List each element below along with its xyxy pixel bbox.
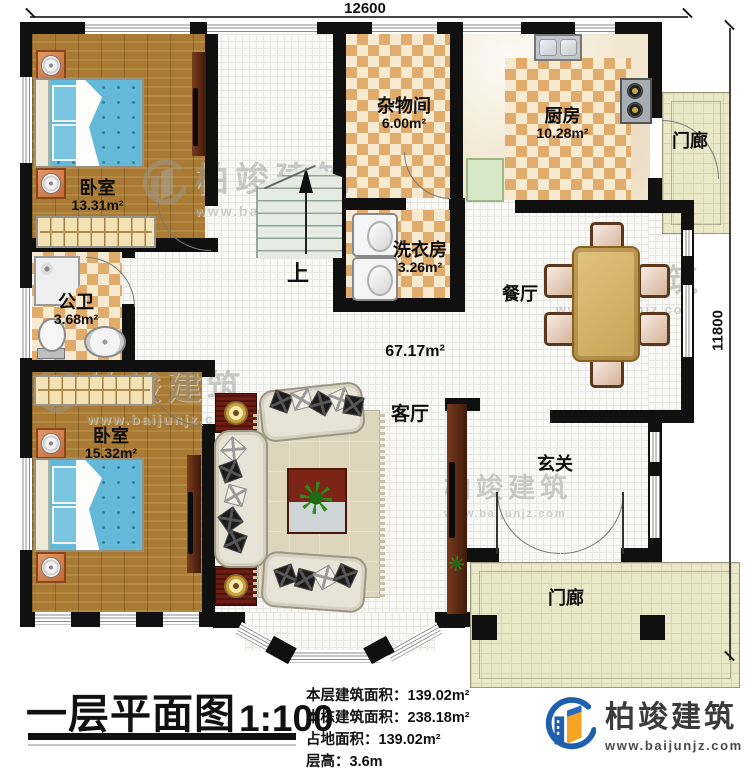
corner-table-icon (215, 393, 257, 433)
window (650, 476, 660, 538)
bathroom-sink-icon (84, 326, 126, 358)
dining-label: 餐厅 (480, 284, 560, 304)
bathroom-name: 公卫 (26, 292, 126, 312)
entry-door-left-leaf (496, 492, 498, 554)
stairs-direction-line (305, 192, 307, 254)
wall-hall-storage-divider (333, 34, 346, 312)
storage-name: 杂物间 (350, 96, 458, 116)
porch-bottom-floor (470, 562, 740, 688)
info-label: 层高： (306, 754, 350, 770)
storage-label: 杂物间 6.00m² (350, 96, 458, 132)
plan-title-text: 一层平面图 (26, 680, 236, 740)
wardrobe-icon (36, 216, 156, 248)
wardrobe-icon (34, 375, 154, 406)
title-underline-thin (28, 744, 296, 746)
nightstand-icon (36, 50, 66, 81)
brand-logo-icon (540, 697, 596, 759)
kitchen-area: 10.28m² (505, 126, 620, 142)
living-area: 67.17m² (355, 343, 475, 361)
dining-chair-icon (638, 264, 670, 298)
bedroom1-name: 卧室 (40, 178, 155, 198)
wall-foyer-bottom-right (621, 548, 662, 562)
window (163, 612, 199, 627)
foyer-name: 玄关 (515, 454, 595, 474)
porch-top-label: 门廊 (658, 131, 722, 151)
plan-title: 一层平面图 1:100 (26, 680, 334, 740)
wall-foyer-bottom-left (465, 548, 499, 562)
kitchen-cabinet-icon (466, 158, 504, 202)
porch-pillar (640, 615, 665, 640)
bed-headboard (36, 80, 50, 166)
window (575, 22, 615, 34)
porch-bottom-name: 门廊 (526, 588, 606, 608)
entry-door-right-leaf (622, 492, 624, 554)
kitchen-name: 厨房 (505, 106, 620, 126)
bathroom-area: 3.68m² (26, 312, 126, 328)
stove-icon (620, 78, 652, 124)
window (372, 22, 437, 34)
building-info: 本层建筑面积：139.02m² 本栋建筑面积：238.18m² 占地面积：139… (306, 685, 470, 773)
brand-name: 柏竣建筑 (605, 703, 743, 733)
bed-pillow (52, 506, 78, 544)
dining-name: 餐厅 (480, 284, 560, 304)
bed-sheet (76, 460, 102, 550)
floor-plan-page: 柏竣建筑 www.baijunjz.com 柏竣建筑 www.baijunjz.… (0, 0, 750, 780)
bed-pillow (52, 85, 78, 122)
tv-icon (193, 88, 198, 146)
wall-kitchen-bottom (515, 200, 694, 213)
wall-bedroom2-right-a (202, 372, 215, 377)
window (100, 612, 136, 627)
bed-headboard (36, 460, 50, 550)
bed-icon (34, 78, 144, 168)
window (463, 22, 521, 34)
dimension-line-right (729, 28, 731, 660)
sofa-pillow (342, 394, 364, 416)
bay-post (435, 612, 465, 628)
window (683, 285, 692, 357)
brand-website: www.baijunjz.com (605, 738, 743, 753)
window (20, 458, 32, 550)
dimension-top-value: 12600 (325, 0, 405, 17)
dining-chair-icon (638, 312, 670, 346)
bedroom1-label: 卧室 13.31m² (40, 178, 155, 214)
stairs-up-label: 上 (278, 256, 318, 288)
info-line: 占地面积：139.02m² (306, 729, 470, 751)
bedroom1-area: 13.31m² (40, 198, 155, 214)
info-line: 本层建筑面积：139.02m² (306, 685, 470, 707)
bedroom2-label: 卧室 15.32m² (52, 426, 170, 462)
storage-area: 6.00m² (350, 116, 458, 132)
tv-icon (188, 492, 193, 554)
bed-sheet (76, 80, 102, 166)
bed-icon (34, 458, 144, 552)
info-value: 139.02m² (379, 732, 441, 748)
burner-icon (627, 83, 643, 99)
plant-icon (300, 482, 332, 514)
wall-bedroom1-divider (205, 34, 218, 206)
bedroom2-area: 15.32m² (52, 446, 170, 462)
wall-bedroom2-top (20, 360, 215, 372)
tv-icon (449, 462, 455, 538)
info-label: 占地面积： (306, 732, 379, 748)
title-underline (28, 733, 296, 740)
wall-storage-bottom-a (333, 198, 406, 210)
bed-pillow (52, 124, 78, 161)
porch-bottom-label: 门廊 (526, 588, 606, 608)
window (650, 432, 660, 462)
window (85, 22, 190, 34)
dimension-right-value: 11800 (710, 291, 727, 371)
info-line: 层高：3.6m (306, 751, 470, 773)
porch-pillar (472, 615, 497, 640)
info-label: 本栋建筑面积： (306, 710, 408, 726)
plant-icon (449, 556, 464, 571)
kitchen-label: 厨房 10.28m² (505, 106, 620, 142)
porch-top-name: 门廊 (658, 131, 722, 151)
window (35, 612, 71, 627)
info-label: 本层建筑面积： (306, 688, 408, 704)
kitchen-sink-icon (534, 34, 582, 61)
living-name: 客厅 (370, 404, 450, 425)
living-area-label: 67.17m² (355, 343, 475, 361)
wall-laundry-bottom (333, 298, 465, 312)
bed-pillow (52, 466, 78, 504)
dining-table-icon (572, 246, 640, 362)
bedroom2-name: 卧室 (52, 426, 170, 446)
nightstand-icon (36, 552, 66, 583)
wall-dining-bottom (550, 410, 694, 423)
bathroom-label: 公卫 3.68m² (26, 292, 126, 328)
info-value: 238.18m² (408, 710, 470, 726)
laundry-label: 洗衣房 3.26m² (368, 240, 472, 276)
info-value: 139.02m² (408, 688, 470, 704)
laundry-area: 3.26m² (368, 260, 472, 276)
burner-icon (627, 102, 643, 118)
window (207, 22, 317, 34)
corner-table-icon (215, 566, 257, 606)
window (20, 77, 32, 163)
info-value: 3.6m (350, 754, 383, 770)
foyer-label: 玄关 (515, 454, 595, 474)
info-line: 本栋建筑面积：238.18m² (306, 707, 470, 729)
laundry-name: 洗衣房 (368, 240, 472, 260)
living-label: 客厅 (370, 404, 450, 425)
brand-logo: 柏竣建筑 www.baijunjz.com (540, 697, 743, 759)
window (683, 230, 692, 256)
wall-bath-right-a (122, 252, 135, 258)
